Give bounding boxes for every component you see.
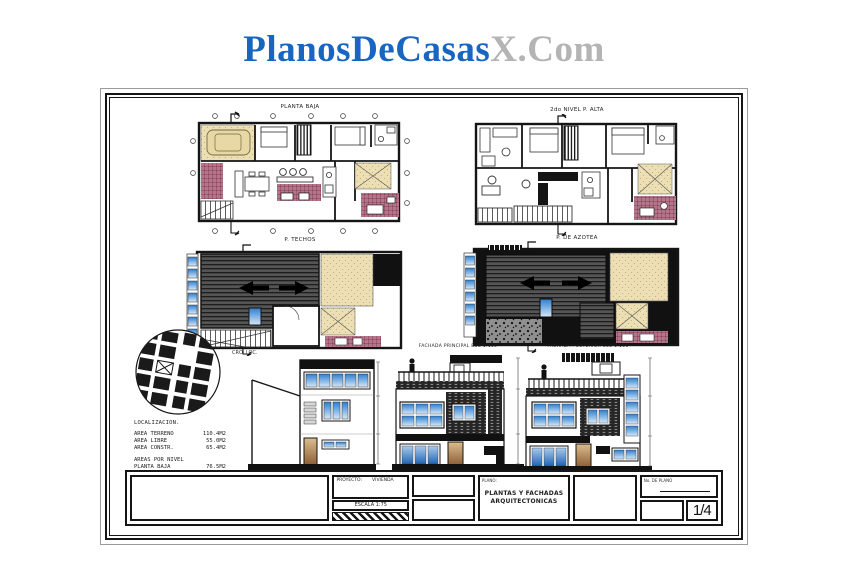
project-info: PROYECTO: VIVIENDA: [332, 475, 409, 499]
project-label: PROYECTO:: [336, 478, 362, 496]
dimension-line: [376, 362, 380, 464]
roof-dark-area: [373, 254, 401, 286]
roof-room: [273, 306, 319, 346]
wardrobe-block: [538, 172, 578, 181]
upper-window-grid: [400, 402, 444, 428]
project-value: VIVIENDA: [372, 478, 394, 496]
skylight-strip: [464, 253, 476, 337]
floor-band: [526, 436, 590, 443]
elevation-posterior: [518, 350, 658, 478]
plan-title-ground: PLANTA BAJA: [185, 104, 415, 110]
number-label: No. DE PLANO: [644, 478, 672, 483]
titleblock-sheet-title-cell: PLANO: PLANTAS Y FACHADAS ARQUITECTONICA…: [478, 475, 570, 521]
titleblock-empty-cell: [573, 475, 637, 521]
person-icon: [409, 358, 414, 373]
dimension-line: [648, 358, 652, 466]
site-logo-suffix: X.Com: [490, 29, 605, 70]
graphic-scale-bar: [332, 512, 409, 521]
mid-window: [322, 400, 350, 421]
facade-accent: [496, 446, 504, 466]
lower-sloped-roof: [580, 303, 614, 339]
stairs: [514, 206, 572, 222]
floor-plan-ground: [185, 111, 415, 236]
dining-set: [235, 171, 269, 197]
signature-line: [660, 491, 710, 492]
upper-window-grid: [532, 402, 576, 428]
site-location-map: [132, 326, 224, 418]
site-logo[interactable]: PlanosDeCasasX.Com: [0, 28, 848, 71]
car-icon: [207, 130, 250, 155]
closet: [564, 126, 578, 160]
parapet-band: [396, 381, 504, 389]
bathroom-top: [656, 126, 674, 144]
area-row: AREA TERRENO110.4M2: [134, 431, 226, 438]
small-window: [452, 404, 476, 421]
bathroom-mid: [323, 167, 336, 197]
closet: [297, 125, 311, 155]
plano-label: PLANO:: [482, 478, 497, 483]
edge-band: [488, 245, 522, 250]
levels-header: AREAS POR NIVEL: [134, 457, 226, 464]
lower-window: [530, 446, 568, 468]
elevation-principal: [388, 350, 528, 478]
roof-terrace: [321, 254, 373, 306]
title-block: PROYECTO: VIVIENDA ESCALA 1:75 PLANO: PL…: [125, 470, 723, 526]
roof-stub: [450, 355, 502, 363]
person-icon: [541, 364, 546, 379]
side-wall-lines: [252, 380, 300, 466]
section-cut-mark: [558, 114, 566, 124]
area-row: AREA LIBRE55.0M2: [134, 438, 226, 445]
terrace-tan: [638, 164, 672, 194]
lower-window: [322, 440, 349, 449]
plan-number-label-box: No. DE PLANO: [640, 475, 718, 498]
bathroom-mid: [582, 172, 600, 198]
patio-tile-floor: [201, 163, 223, 199]
bathroom-rear: [634, 196, 676, 220]
lot-marker: [156, 360, 174, 375]
plan-title-upper: 2do NIVEL P. ALTA: [462, 107, 692, 113]
balcony: [478, 208, 512, 222]
page-number: 1/4: [686, 500, 718, 521]
roof-plan-right: [462, 241, 692, 353]
floor-plan-upper: [462, 114, 692, 236]
rear-patio: [355, 163, 391, 189]
lower-window: [400, 444, 440, 466]
skylight: [540, 299, 552, 317]
area-row: AREA CONSTR.65.4M2: [134, 445, 226, 452]
lower-right-window: [612, 448, 638, 461]
plan-title-roof-left: P. TECHOS: [185, 237, 415, 243]
titleblock-notes-cell: [130, 475, 329, 521]
wardrobe-block: [538, 183, 548, 205]
site-logo-primary: PlanosDeCasas: [243, 29, 490, 70]
roof-stripe-band: [562, 353, 614, 362]
door: [576, 444, 591, 468]
terrace-railing: [398, 372, 504, 381]
door: [448, 442, 463, 466]
terrace-x: [616, 303, 648, 329]
floor-band: [396, 434, 504, 441]
sheet-title-line1: PLANTAS Y FACHADAS: [485, 490, 564, 498]
terrace-x: [321, 308, 355, 335]
upper-window: [304, 372, 370, 389]
bathroom-top: [375, 125, 397, 145]
titleblock-empty-box: [412, 475, 475, 497]
gravel-texture: [486, 319, 542, 343]
sheet-border-outer: PLANTA BAJA 2do NIVEL P. ALTA P. TECHOS …: [105, 93, 743, 540]
bathroom-rear: [361, 193, 399, 217]
door: [304, 438, 317, 466]
small-window: [586, 408, 610, 425]
titleblock-project-cell: PROYECTO: VIVIENDA ESCALA 1:75: [332, 475, 409, 521]
page: PlanosDeCasasX.Com PLANTA BAJA 2do NIVEL…: [0, 0, 848, 574]
glass-stack-column: [624, 375, 640, 443]
roof-terrace: [610, 253, 668, 301]
titleblock-empty-stack: [412, 475, 475, 521]
titleblock-small-box: [640, 500, 684, 521]
sheet-border-inner: PLANTA BAJA 2do NIVEL P. ALTA P. TECHOS …: [109, 97, 739, 536]
facade-accent: [596, 446, 610, 454]
drawing-sheet: PLANTA BAJA 2do NIVEL P. ALTA P. TECHOS …: [100, 88, 748, 545]
roof-band: [300, 360, 374, 369]
area-table-header: LOCALIZACION.: [134, 420, 226, 427]
skylight: [249, 308, 261, 325]
titleblock-number-cell: No. DE PLANO 1/4: [640, 475, 718, 521]
terrace-railing: [528, 379, 624, 388]
titleblock-empty-box: [412, 499, 475, 521]
clad-column: [488, 389, 502, 434]
parapet-band: [526, 388, 626, 396]
elevation-side: [242, 350, 382, 478]
sheet-title-line2: ARQUITECTONICAS: [491, 498, 558, 506]
scale-label: ESCALA 1:75: [332, 500, 409, 511]
